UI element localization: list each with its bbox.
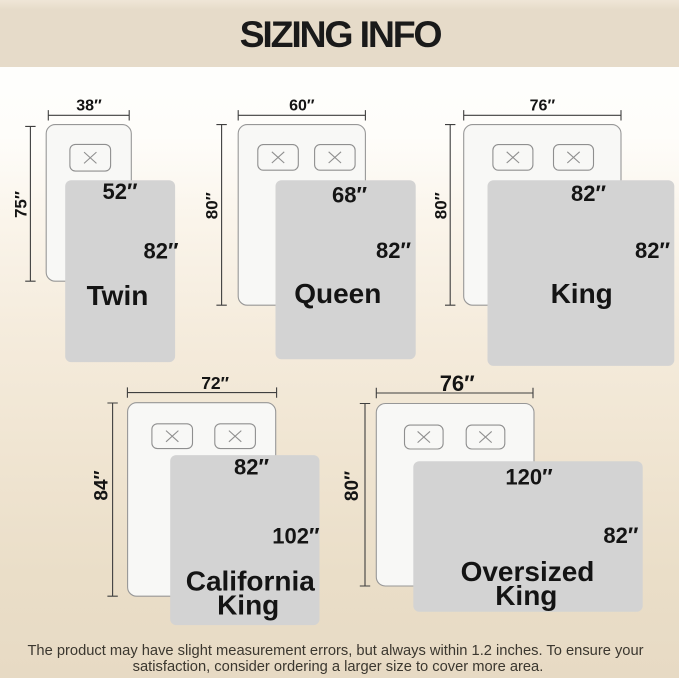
svg-text:38″: 38″	[76, 98, 102, 115]
svg-text:102″: 102″	[272, 524, 320, 549]
svg-text:SIZING INFO: SIZING INFO	[240, 13, 442, 55]
svg-text:Queen: Queen	[294, 278, 381, 309]
svg-text:82″: 82″	[143, 239, 178, 264]
svg-text:King: King	[551, 278, 613, 309]
svg-text:76″: 76″	[440, 371, 475, 396]
svg-text:satisfaction, consider orderin: satisfaction, consider ordering a larger…	[133, 659, 544, 675]
svg-text:120″: 120″	[505, 465, 553, 490]
svg-text:80″: 80″	[342, 471, 363, 501]
svg-text:52″: 52″	[102, 179, 137, 204]
svg-text:72″: 72″	[201, 373, 229, 393]
svg-text:The product may have slight me: The product may have slight measurement …	[27, 643, 643, 659]
svg-text:82″: 82″	[234, 455, 269, 480]
svg-text:King: King	[217, 590, 279, 621]
svg-text:68″: 68″	[332, 182, 367, 207]
svg-text:80″: 80″	[203, 192, 222, 219]
svg-text:84″: 84″	[91, 470, 112, 500]
svg-text:Twin: Twin	[87, 280, 149, 311]
svg-text:82″: 82″	[571, 181, 606, 206]
svg-text:82″: 82″	[603, 523, 638, 548]
svg-text:King: King	[495, 580, 557, 611]
svg-text:82″: 82″	[376, 238, 411, 263]
svg-text:75″: 75″	[12, 191, 31, 218]
svg-text:80″: 80″	[432, 192, 451, 219]
svg-text:60″: 60″	[289, 98, 315, 115]
svg-text:76″: 76″	[530, 98, 556, 115]
svg-text:82″: 82″	[635, 238, 670, 263]
